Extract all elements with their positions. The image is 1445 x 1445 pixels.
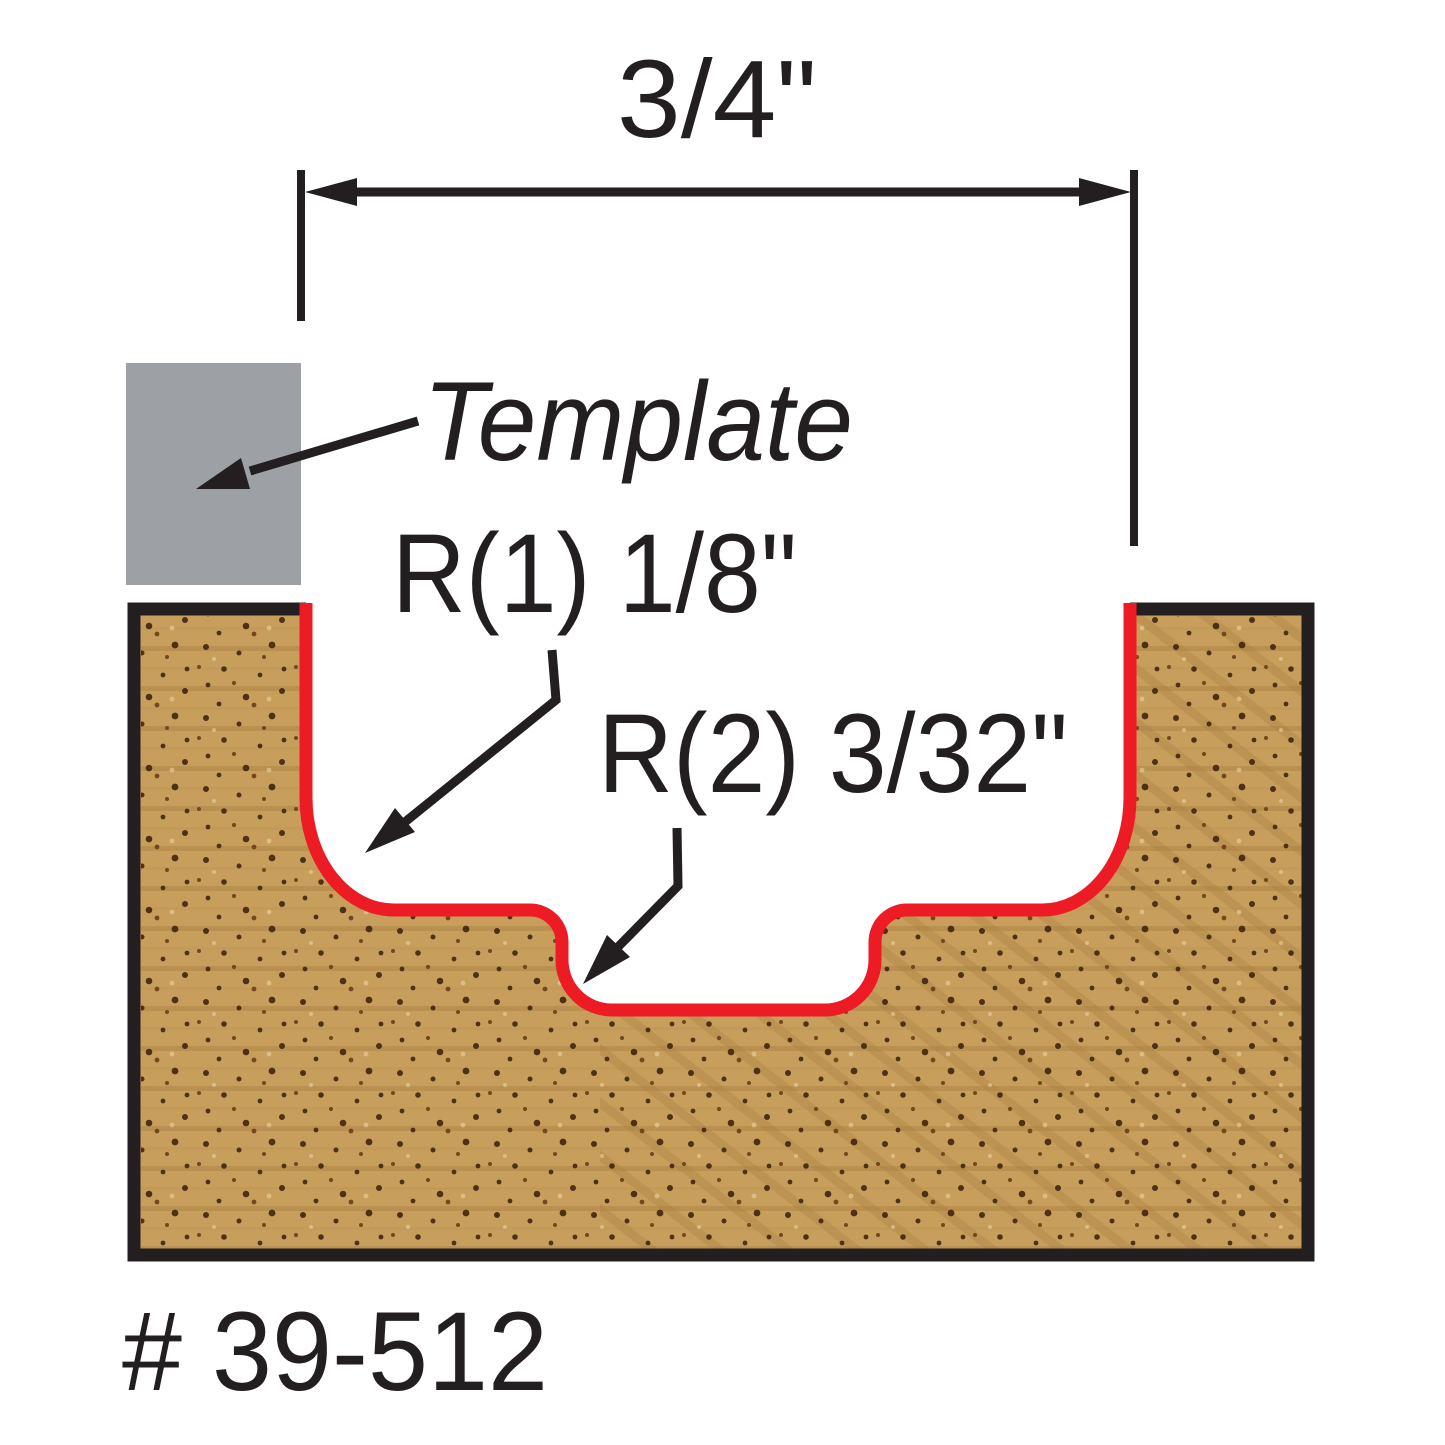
dimension-arrowhead-right-icon	[1079, 178, 1131, 206]
dimension-label: 3/4"	[617, 38, 817, 161]
template-block	[126, 363, 301, 585]
radius2-label: R(2) 3/32"	[598, 691, 1068, 816]
dimension-arrowhead-left-icon	[305, 178, 357, 206]
template-label: Template	[423, 359, 853, 484]
diagram-canvas: 3/4" Template R(1) 1/8" R(2) 3/32" # 39-…	[0, 0, 1445, 1445]
radius1-label: R(1) 1/8"	[392, 511, 797, 636]
part-number: # 39-512	[122, 1289, 548, 1414]
router-bit-profile-diagram: 3/4" Template R(1) 1/8" R(2) 3/32" # 39-…	[0, 0, 1445, 1445]
